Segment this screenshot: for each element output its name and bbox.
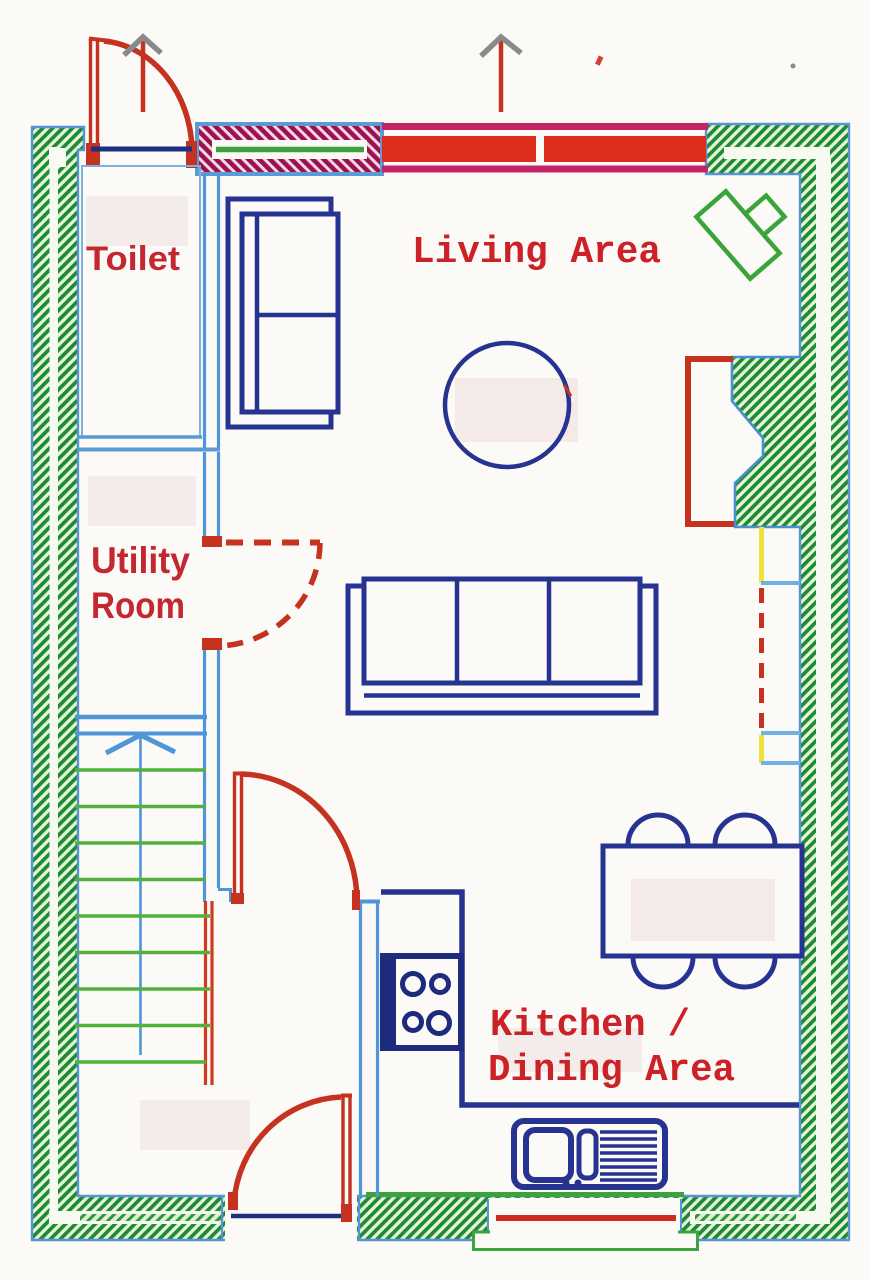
svg-text:Kitchen /: Kitchen / — [490, 1004, 690, 1047]
svg-text:Toilet: Toilet — [86, 240, 180, 278]
svg-text:Room: Room — [91, 585, 185, 626]
svg-text:Utility: Utility — [91, 540, 190, 581]
svg-text:Living Area: Living Area — [412, 231, 661, 274]
svg-text:Dining Area: Dining Area — [488, 1049, 735, 1092]
